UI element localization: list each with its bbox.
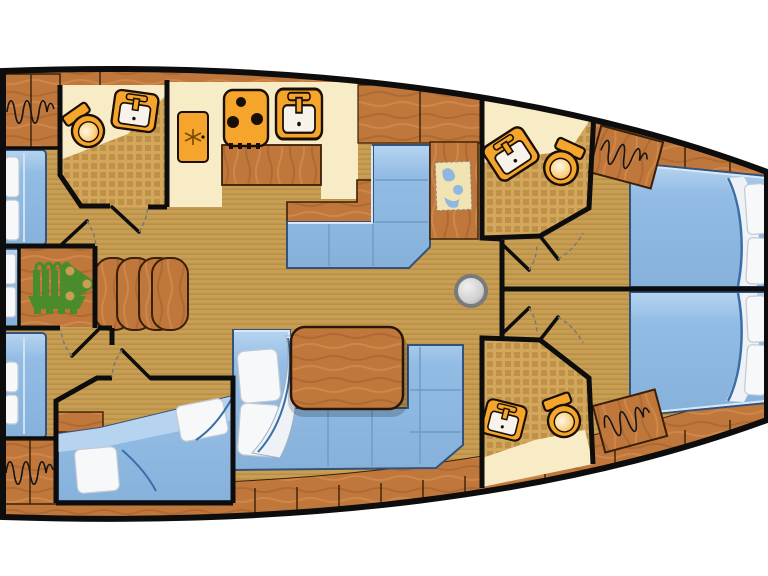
companionway-steps: Companionway steps [95,258,188,330]
hanging-locker-stern-top: Hanging locker [3,74,60,148]
bed-aft-starboard: Double berth [3,150,46,245]
fridge-icon: Refrigerator [178,112,208,162]
settee-lower: Salon settee (port, U-shaped) [233,327,463,470]
mast-post: Mast compression post [456,276,486,306]
chart-map: Chart table with sea map [435,161,472,210]
floorplan-stage: Sailing yacht interior deck plan [0,0,768,576]
galley-sink-icon: Galley sink [276,89,322,139]
galley-counter [222,145,321,185]
stove-icon: 3-burner stove [224,90,268,149]
engine-room: Engine room Engine [20,247,96,327]
salon-table [291,327,403,409]
bathroom-aft: Aft bathroom [60,85,167,207]
hanging-locker-stern-bottom: Hanging locker [3,440,59,504]
sink-icon [111,89,160,133]
yacht-floorplan: Sailing yacht interior deck plan [0,0,768,576]
bed-aft-port-outer: Double berth [3,333,46,438]
